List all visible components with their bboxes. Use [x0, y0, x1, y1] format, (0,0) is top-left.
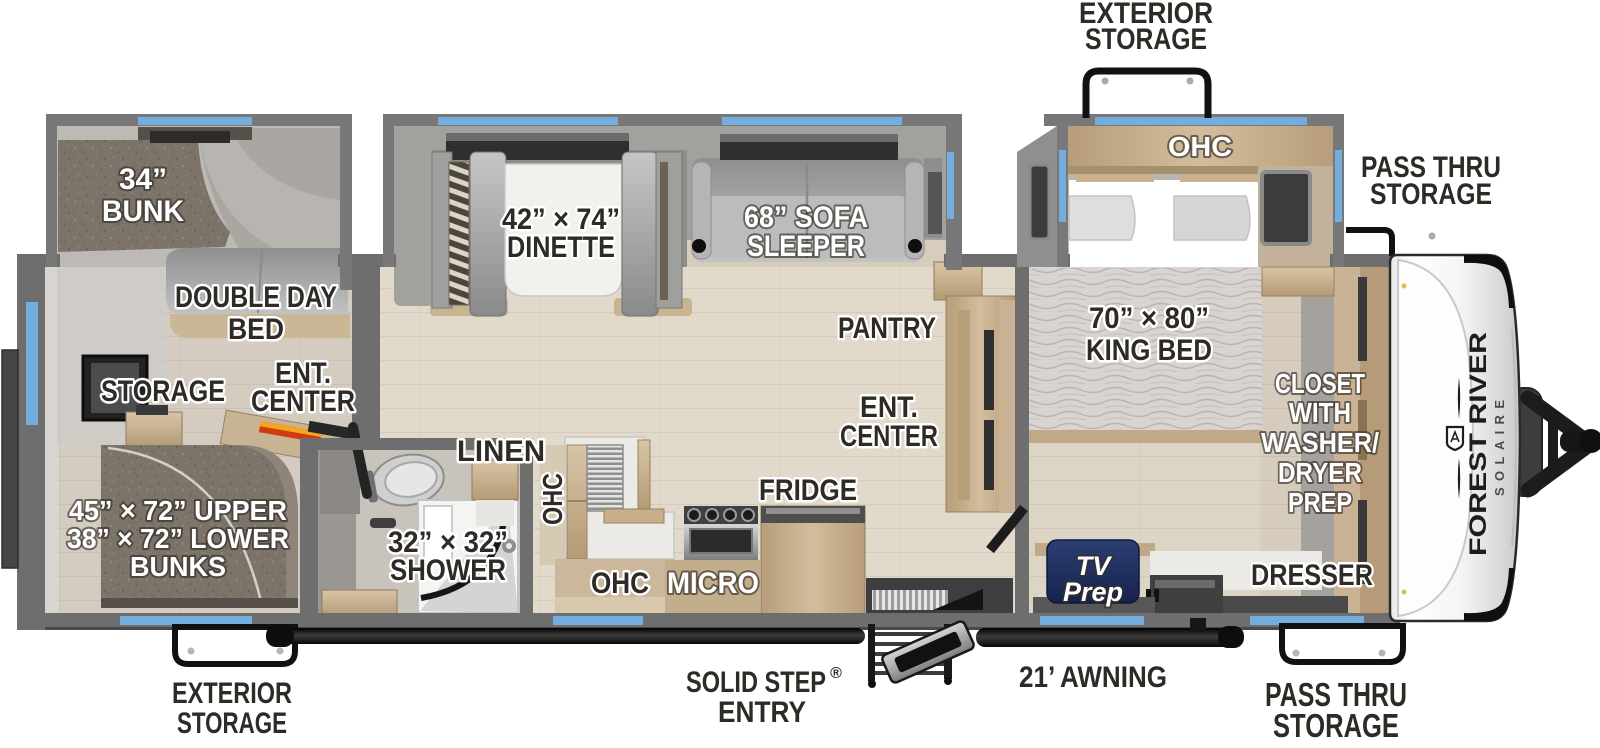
svg-text:OHC: OHC: [537, 473, 568, 525]
svg-text:LINEN: LINEN: [457, 435, 545, 468]
svg-text:DRYER: DRYER: [1278, 457, 1362, 488]
svg-text:STORAGE: STORAGE: [1273, 707, 1399, 744]
svg-text:EXTERIOR: EXTERIOR: [172, 677, 292, 710]
svg-text:OHC: OHC: [1168, 131, 1232, 162]
svg-text:STORAGE: STORAGE: [101, 375, 225, 408]
svg-text:70” × 80”: 70” × 80”: [1089, 302, 1209, 335]
svg-text:BED: BED: [228, 313, 284, 346]
svg-text:ENTRY: ENTRY: [718, 696, 806, 729]
svg-text:DOUBLE DAY: DOUBLE DAY: [175, 281, 337, 314]
svg-text:SOLID STEP: SOLID STEP: [686, 666, 826, 699]
svg-text:KING BED: KING BED: [1086, 334, 1212, 367]
svg-text:PREP: PREP: [1288, 487, 1352, 518]
svg-text:WITH: WITH: [1289, 397, 1351, 428]
svg-text:Prep: Prep: [1063, 577, 1123, 607]
svg-text:STORAGE: STORAGE: [1085, 23, 1207, 56]
svg-text:PANTRY: PANTRY: [838, 312, 936, 345]
svg-text:38” × 72” LOWER: 38” × 72” LOWER: [67, 523, 289, 554]
svg-text:CENTER: CENTER: [840, 420, 938, 453]
svg-text:21’ AWNING: 21’ AWNING: [1019, 661, 1167, 694]
svg-text:BUNK: BUNK: [102, 195, 184, 228]
svg-text:CLOSET: CLOSET: [1275, 368, 1365, 399]
svg-text:SLEEPER: SLEEPER: [747, 230, 865, 263]
svg-text:STORAGE: STORAGE: [1370, 178, 1492, 211]
svg-text:34”: 34”: [119, 163, 167, 196]
svg-text:MICRO: MICRO: [667, 567, 759, 600]
svg-text:WASHER/: WASHER/: [1261, 427, 1379, 458]
svg-text:DRESSER: DRESSER: [1251, 559, 1373, 592]
svg-text:BUNKS: BUNKS: [130, 551, 226, 582]
svg-text:STORAGE: STORAGE: [177, 707, 287, 740]
svg-text:45” × 72” UPPER: 45” × 72” UPPER: [69, 495, 287, 526]
svg-text:DINETTE: DINETTE: [507, 231, 615, 264]
svg-text:SHOWER: SHOWER: [390, 554, 506, 587]
svg-text:FRIDGE: FRIDGE: [759, 474, 857, 507]
svg-text:CENTER: CENTER: [251, 385, 355, 418]
svg-text:FOREST RIVER: FOREST RIVER: [1465, 332, 1492, 556]
svg-text:®: ®: [830, 665, 842, 682]
svg-text:OHC: OHC: [591, 567, 649, 600]
